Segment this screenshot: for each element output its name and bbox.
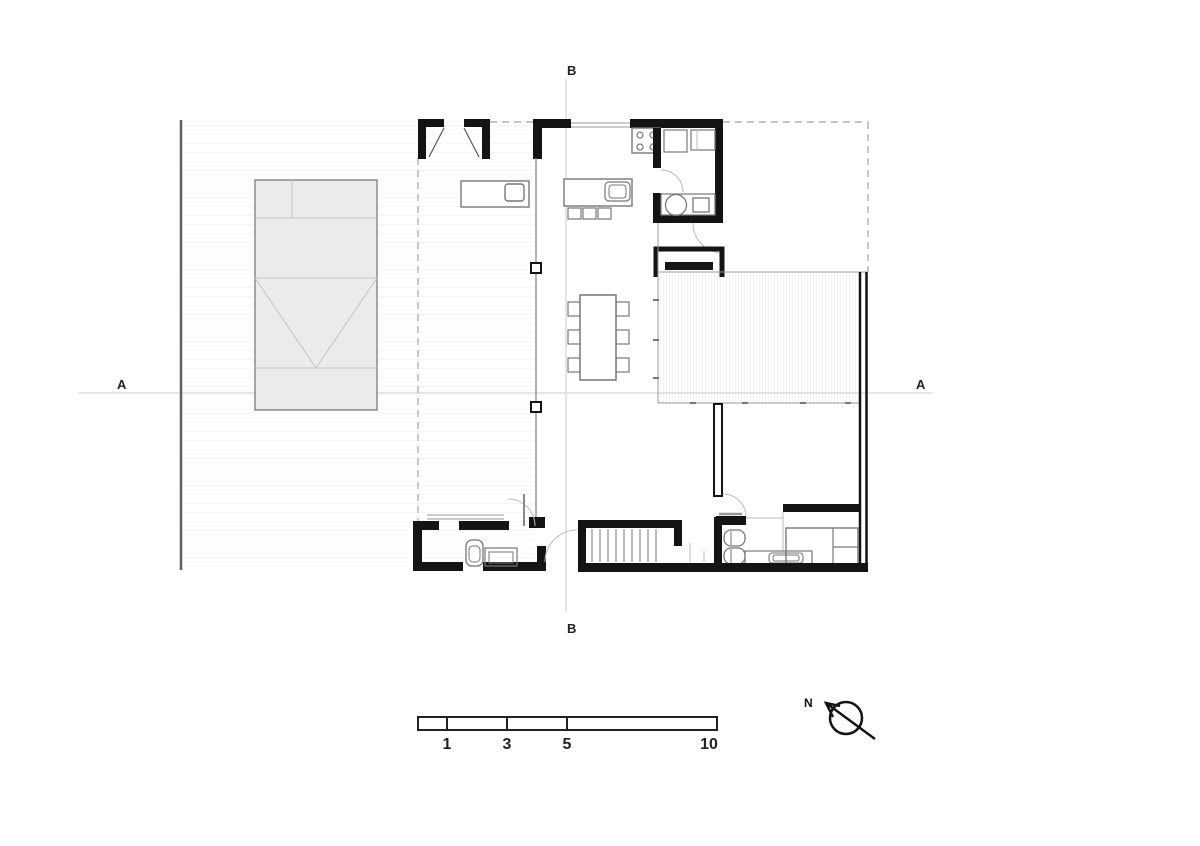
north-arrow-icon: N [804, 696, 875, 739]
wardrobe-closet [783, 504, 860, 566]
dining-table [568, 295, 629, 380]
section-line-b: B B [566, 63, 576, 636]
laundry-sink [693, 198, 709, 212]
pantry-laundry [653, 119, 723, 253]
toilet [724, 530, 745, 546]
kitchen-island [564, 179, 632, 219]
floor-plan-drawing: A A B B [0, 0, 1200, 846]
scale-tick-label: 3 [503, 736, 512, 753]
deck [653, 272, 868, 403]
east-exterior-wall [860, 272, 867, 571]
section-label-a-right: A [916, 377, 926, 392]
stool [568, 208, 581, 219]
kitchen-north-wall [571, 119, 723, 128]
bidet [724, 548, 745, 564]
dining-chair [616, 302, 629, 316]
stool [598, 208, 611, 219]
north-label: N [804, 696, 813, 710]
dining-chair [616, 330, 629, 344]
stool [583, 208, 596, 219]
mullion-post [531, 402, 541, 412]
hall-door-swing [545, 530, 577, 562]
section-label-b-bottom: B [567, 621, 576, 636]
scale-bar: 1 3 5 10 [418, 717, 718, 753]
mullion-post [531, 263, 541, 273]
dining-chair [568, 330, 581, 344]
scale-tick-label: 10 [700, 736, 718, 753]
glass-wall-end-pier [529, 517, 545, 528]
section-label-a-left: A [117, 377, 127, 392]
south-exterior-wall [578, 563, 868, 572]
fireplace [656, 223, 722, 277]
pantry-counter [691, 130, 715, 150]
dining-chair [568, 358, 581, 372]
carport-roof [255, 180, 377, 410]
dining-chair [616, 358, 629, 372]
study-desk [461, 181, 529, 207]
scale-tick-label: 1 [443, 736, 452, 753]
washer [666, 195, 687, 216]
bedroom-partition [714, 404, 746, 517]
section-label-b-top: B [567, 63, 576, 78]
scale-tick-label: 5 [563, 736, 572, 753]
floor-plan-sheet: A A B B [0, 0, 1200, 846]
fridge [664, 130, 687, 152]
dining-chair [568, 302, 581, 316]
desk-chair [505, 184, 524, 201]
